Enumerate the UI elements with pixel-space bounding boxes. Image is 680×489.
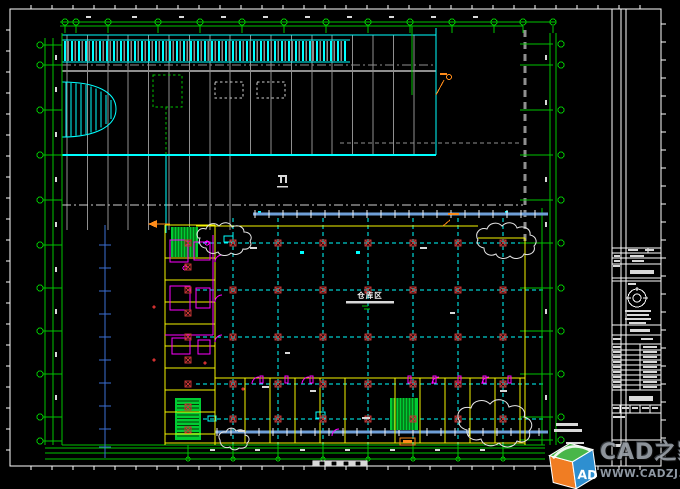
watermark-brand: CAD之家 [600, 441, 680, 465]
small-text-bars [55, 16, 658, 466]
warehouse-area-label: 仓库区 [356, 290, 383, 300]
grid-dimension-lines [37, 19, 564, 461]
blue-dimension-line [99, 225, 111, 458]
watermark-url: WWW.CADZJ.COM [600, 468, 680, 480]
area-label-group: 仓库区 [356, 290, 383, 300]
cadzj-logo-cube: AD [545, 438, 601, 489]
watermark-text: CAD之家 WWW.CADZJ.COM [600, 441, 680, 480]
watermark: AD CAD之家 WWW.CADZJ.COM [548, 441, 680, 489]
cube-letters: AD [577, 467, 598, 483]
cad-drawing: 仓库区 [0, 0, 680, 489]
cad-screenshot: 仓库区 AD CAD之家 WWW.CADZJ.COM [0, 0, 680, 489]
band-tick-marks [217, 210, 539, 436]
curtainwall-lines [62, 28, 546, 445]
facade-hatch-cyan [64, 41, 508, 254]
wall-lines [165, 225, 525, 445]
